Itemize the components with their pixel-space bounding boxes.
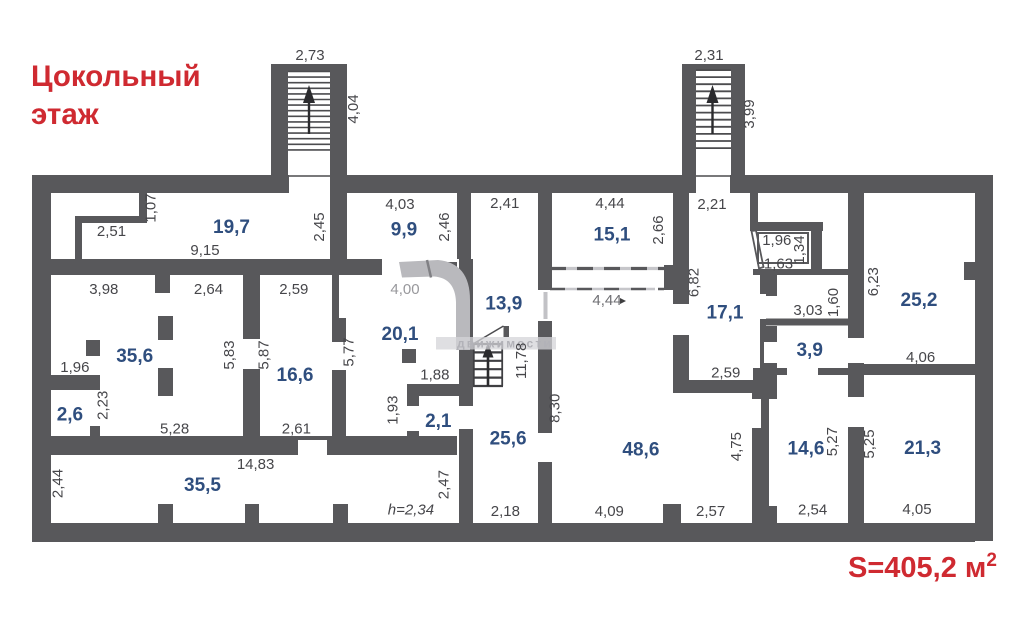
svg-text:2,31: 2,31 <box>694 47 723 64</box>
svg-text:1,34: 1,34 <box>791 235 808 264</box>
svg-text:17,1: 17,1 <box>707 303 744 324</box>
svg-text:2,64: 2,64 <box>194 281 223 298</box>
svg-text:25,6: 25,6 <box>490 429 527 450</box>
svg-text:6,82: 6,82 <box>686 268 703 297</box>
svg-text:2,6: 2,6 <box>57 404 83 425</box>
svg-text:4,44: 4,44 <box>595 195 624 212</box>
svg-text:3,9: 3,9 <box>796 340 822 361</box>
svg-text:4,44: 4,44 <box>592 292 621 309</box>
svg-text:1,96: 1,96 <box>762 232 791 249</box>
svg-text:8,30: 8,30 <box>547 394 564 423</box>
svg-text:2,51: 2,51 <box>97 223 126 240</box>
svg-text:2,54: 2,54 <box>798 502 827 519</box>
svg-text:4,05: 4,05 <box>902 501 931 518</box>
svg-text:9,15: 9,15 <box>190 242 219 259</box>
svg-text:2,57: 2,57 <box>696 503 725 520</box>
svg-text:движимости: движимости <box>457 337 553 351</box>
svg-text:20,1: 20,1 <box>382 324 419 345</box>
svg-text:16,6: 16,6 <box>277 365 314 386</box>
svg-text:5,87: 5,87 <box>256 340 273 369</box>
svg-text:6,23: 6,23 <box>865 267 882 296</box>
svg-text:4,75: 4,75 <box>728 432 745 461</box>
svg-text:4,09: 4,09 <box>595 503 624 520</box>
svg-text:5,25: 5,25 <box>861 429 878 458</box>
svg-text:4,03: 4,03 <box>385 196 414 213</box>
svg-text:2,61: 2,61 <box>282 421 311 438</box>
svg-text:1,96: 1,96 <box>60 359 89 376</box>
svg-text:1,93: 1,93 <box>384 395 401 424</box>
svg-text:19,7: 19,7 <box>213 217 250 238</box>
svg-text:2,18: 2,18 <box>491 503 520 520</box>
svg-text:2,73: 2,73 <box>295 47 324 64</box>
svg-text:h=2,34: h=2,34 <box>388 502 434 519</box>
svg-text:14,83: 14,83 <box>237 456 275 473</box>
svg-text:2,44: 2,44 <box>50 469 67 498</box>
svg-text:2,1: 2,1 <box>425 411 452 432</box>
svg-text:35,6: 35,6 <box>116 346 153 367</box>
svg-text:2,23: 2,23 <box>95 391 112 420</box>
svg-text:4,06: 4,06 <box>906 349 935 366</box>
svg-text:2,47: 2,47 <box>435 470 452 499</box>
svg-text:Цокольный: Цокольный <box>31 60 201 93</box>
svg-text:48,6: 48,6 <box>622 440 659 461</box>
svg-text:5,28: 5,28 <box>160 421 189 438</box>
svg-text:1,07: 1,07 <box>143 193 160 222</box>
svg-text:1,60: 1,60 <box>825 288 842 317</box>
svg-text:13,9: 13,9 <box>485 294 522 315</box>
svg-text:1,63: 1,63 <box>764 256 793 273</box>
svg-text:35,5: 35,5 <box>184 475 221 496</box>
svg-text:2,59: 2,59 <box>279 281 308 298</box>
svg-text:5,83: 5,83 <box>221 340 238 369</box>
svg-text:3,99: 3,99 <box>741 99 758 128</box>
svg-text:5,27: 5,27 <box>824 427 841 456</box>
svg-text:9,9: 9,9 <box>391 220 417 241</box>
svg-text:этаж: этаж <box>31 98 100 131</box>
svg-text:15,1: 15,1 <box>594 225 631 246</box>
svg-text:2,21: 2,21 <box>697 196 726 213</box>
svg-text:5,77: 5,77 <box>341 337 358 366</box>
svg-text:21,3: 21,3 <box>904 438 941 459</box>
svg-text:2,46: 2,46 <box>436 212 453 241</box>
svg-text:11,78: 11,78 <box>513 343 530 379</box>
svg-text:2,41: 2,41 <box>490 195 519 212</box>
svg-text:3,98: 3,98 <box>89 281 118 298</box>
svg-text:S=405,2 м2: S=405,2 м2 <box>848 550 997 584</box>
svg-text:2,59: 2,59 <box>711 365 740 382</box>
svg-text:2,45: 2,45 <box>311 212 328 241</box>
svg-text:2,66: 2,66 <box>650 215 667 244</box>
svg-text:25,2: 25,2 <box>901 290 938 311</box>
svg-text:14,6: 14,6 <box>788 439 825 460</box>
svg-text:3,03: 3,03 <box>793 302 822 319</box>
svg-text:4,04: 4,04 <box>345 94 362 123</box>
svg-text:1,88: 1,88 <box>420 366 449 383</box>
svg-text:4,00: 4,00 <box>390 281 419 298</box>
